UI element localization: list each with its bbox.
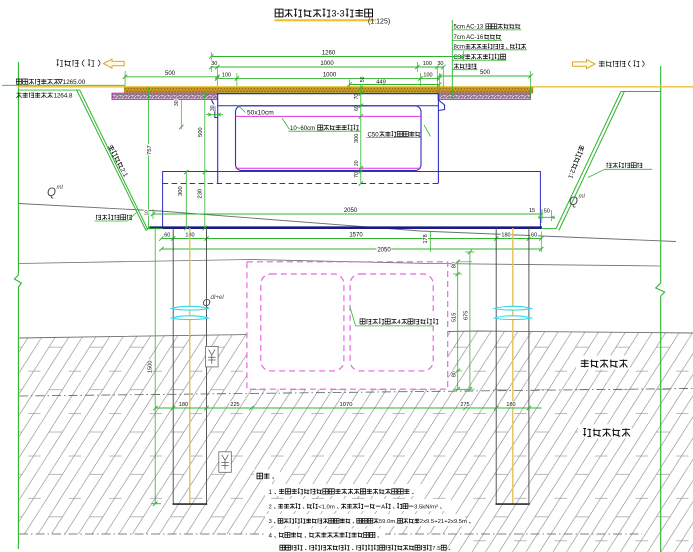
svg-text:1500: 1500 — [148, 361, 154, 373]
svg-text:500: 500 — [198, 127, 204, 137]
svg-text:1070: 1070 — [340, 402, 353, 408]
svg-text:2: 2 — [269, 505, 272, 511]
svg-text:100: 100 — [423, 61, 432, 67]
svg-text:10~60cm: 10~60cm — [290, 125, 315, 132]
svg-text:59.0m,: 59.0m, — [379, 519, 397, 525]
svg-text:70: 70 — [354, 94, 360, 100]
svg-text:675: 675 — [464, 311, 470, 320]
svg-text:10: 10 — [144, 210, 150, 216]
svg-text:180: 180 — [179, 402, 188, 408]
svg-text:60: 60 — [164, 232, 170, 238]
svg-text:50: 50 — [544, 209, 550, 215]
svg-text:1260: 1260 — [322, 51, 336, 57]
svg-text:80: 80 — [451, 262, 457, 268]
svg-text:500: 500 — [480, 70, 491, 76]
svg-text:300: 300 — [354, 134, 360, 143]
svg-text:dl+el: dl+el — [211, 294, 225, 301]
svg-text:50x10cm: 50x10cm — [247, 110, 274, 117]
svg-text:180: 180 — [501, 232, 510, 238]
svg-text:757: 757 — [147, 145, 153, 155]
svg-text:20: 20 — [354, 160, 360, 166]
svg-text:515: 515 — [451, 313, 457, 322]
svg-text:2x9.5+21+2x9.5m: 2x9.5+21+2x9.5m — [420, 519, 467, 525]
svg-text:60: 60 — [531, 232, 537, 238]
svg-text:50: 50 — [360, 76, 366, 82]
svg-text:1000: 1000 — [320, 61, 334, 67]
svg-text:449: 449 — [376, 79, 386, 85]
svg-text:300: 300 — [178, 186, 184, 196]
svg-text:2050: 2050 — [344, 208, 358, 214]
svg-text:1570: 1570 — [349, 233, 363, 239]
svg-text:70: 70 — [354, 172, 360, 178]
svg-text:7.5: 7.5 — [432, 546, 441, 552]
svg-text:4: 4 — [397, 319, 401, 326]
svg-text:275: 275 — [460, 402, 469, 408]
svg-text:15: 15 — [529, 208, 535, 214]
svg-text:Q: Q — [47, 187, 56, 199]
svg-text:(1:125): (1:125) — [368, 19, 390, 26]
svg-text:A: A — [381, 505, 385, 511]
svg-text:ml: ml — [579, 194, 586, 200]
svg-text:80: 80 — [451, 371, 457, 377]
svg-text:100: 100 — [423, 72, 432, 78]
svg-text:178: 178 — [423, 234, 429, 243]
svg-text:30: 30 — [174, 100, 180, 106]
svg-text:500: 500 — [165, 71, 176, 77]
svg-text:4: 4 — [269, 532, 273, 539]
svg-text:30: 30 — [210, 105, 216, 111]
svg-text:230: 230 — [197, 189, 203, 199]
svg-text:225: 225 — [230, 402, 239, 408]
svg-text:1264.8: 1264.8 — [54, 93, 73, 100]
svg-text:3.5kN/m²: 3.5kN/m² — [414, 505, 438, 511]
svg-text:2050: 2050 — [377, 248, 391, 254]
svg-text:30: 30 — [437, 61, 443, 67]
svg-text:<1.0m: <1.0m — [318, 505, 335, 511]
svg-text:3-3: 3-3 — [331, 9, 344, 19]
svg-text:ml: ml — [57, 185, 64, 191]
svg-text:1: 1 — [269, 489, 273, 496]
svg-text:1000: 1000 — [323, 72, 337, 78]
svg-text:60: 60 — [354, 105, 360, 111]
svg-text:180: 180 — [506, 402, 515, 408]
svg-text:100: 100 — [222, 72, 231, 78]
svg-text:Q: Q — [569, 196, 578, 208]
svg-text:30: 30 — [211, 61, 217, 67]
